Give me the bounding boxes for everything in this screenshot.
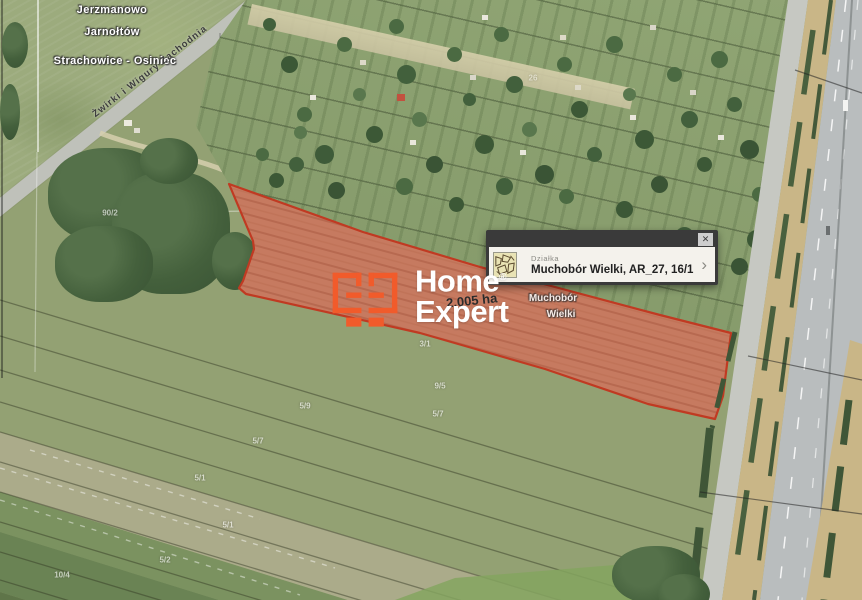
popup-type-label: Działka [531,254,701,263]
map-thumbnail-icon [493,252,517,278]
popup-parcel-title: Muchobór Wielki, AR_27, 16/1 [531,264,701,276]
chevron-right-icon[interactable]: › [701,256,707,273]
parcel-info-popup: ✕ Działka Muchobór Wielki, AR_27, 16/1 › [486,230,718,285]
close-icon[interactable]: ✕ [698,233,713,246]
selected-parcel-highlight [229,184,731,419]
vehicle [843,100,848,111]
vehicle [826,226,830,235]
overlay-layer [0,0,862,600]
parcel-info-card[interactable]: Działka Muchobór Wielki, AR_27, 16/1 › [489,247,715,282]
map-canvas[interactable]: Jerzmanowo Jarnołtów Strachowice - Osini… [0,0,862,600]
